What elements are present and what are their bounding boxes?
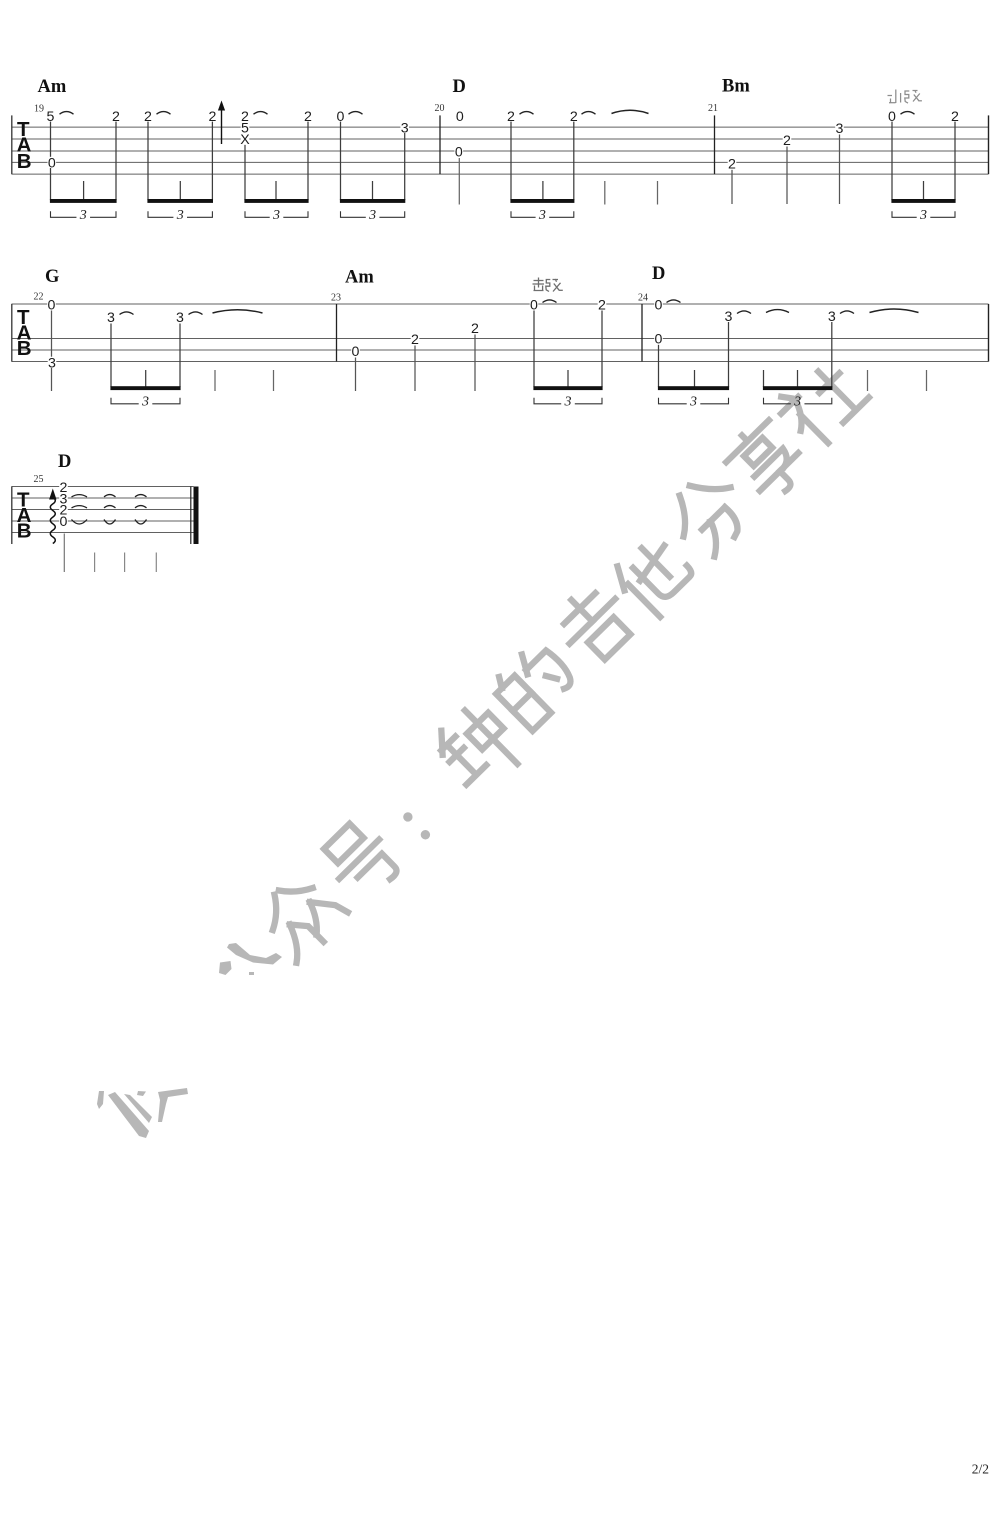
svg-text:D: D [453, 77, 466, 97]
svg-text:Bm: Bm [722, 77, 750, 97]
svg-text:0: 0 [352, 344, 360, 360]
svg-text:21: 21 [708, 103, 718, 114]
svg-text:24: 24 [638, 293, 648, 304]
svg-text:Am: Am [345, 267, 374, 287]
svg-text:3: 3 [368, 208, 376, 223]
svg-text:3: 3 [176, 208, 184, 223]
svg-text:3: 3 [48, 355, 56, 371]
svg-text:D: D [652, 264, 665, 284]
svg-text:0: 0 [455, 145, 463, 161]
svg-text:3: 3 [725, 309, 733, 325]
svg-text:Am: Am [38, 77, 67, 97]
svg-text:5: 5 [47, 109, 55, 125]
svg-text:20: 20 [435, 103, 445, 114]
svg-text:3: 3 [828, 309, 836, 325]
svg-text:25: 25 [34, 474, 44, 485]
svg-text:0: 0 [530, 297, 538, 313]
svg-text:23: 23 [331, 293, 341, 304]
svg-text:B: B [17, 337, 32, 360]
svg-text:3: 3 [919, 208, 927, 223]
svg-text:0: 0 [655, 297, 663, 313]
svg-text:3: 3 [538, 208, 546, 223]
svg-text:2: 2 [951, 109, 959, 125]
svg-text:0: 0 [888, 109, 896, 125]
svg-text:3: 3 [141, 394, 149, 409]
svg-text:2: 2 [304, 109, 312, 125]
svg-text:0: 0 [655, 332, 663, 348]
svg-text:3: 3 [836, 121, 844, 137]
svg-text:3: 3 [689, 394, 697, 409]
svg-text:2: 2 [112, 109, 120, 125]
svg-text:2: 2 [598, 297, 606, 313]
svg-text:0: 0 [456, 109, 464, 125]
svg-text:2: 2 [144, 109, 152, 125]
svg-text:2: 2 [570, 109, 578, 125]
svg-text:22: 22 [34, 292, 44, 303]
svg-text:2: 2 [471, 321, 479, 337]
svg-text:3: 3 [564, 394, 572, 409]
svg-text:0: 0 [48, 155, 56, 171]
svg-text:2: 2 [728, 156, 736, 172]
svg-text:D: D [58, 452, 71, 472]
svg-text:0: 0 [337, 109, 345, 125]
svg-text:3: 3 [107, 310, 115, 326]
svg-text:3: 3 [79, 208, 87, 223]
svg-text:19: 19 [34, 104, 44, 115]
svg-text:3: 3 [176, 310, 184, 326]
svg-text:X: X [240, 132, 250, 148]
svg-text:B: B [17, 150, 32, 173]
svg-text:3: 3 [272, 208, 280, 223]
svg-text:0: 0 [48, 297, 56, 313]
svg-text:2: 2 [411, 332, 419, 348]
svg-text:B: B [17, 520, 32, 543]
svg-text:0: 0 [60, 514, 68, 530]
svg-text:2: 2 [208, 109, 216, 125]
svg-text:3: 3 [401, 120, 409, 136]
svg-text:3: 3 [793, 394, 801, 409]
svg-text:2/2: 2/2 [972, 1462, 989, 1477]
svg-text:G: G [45, 267, 59, 287]
svg-text:2: 2 [507, 109, 515, 125]
svg-text:2: 2 [783, 133, 791, 149]
